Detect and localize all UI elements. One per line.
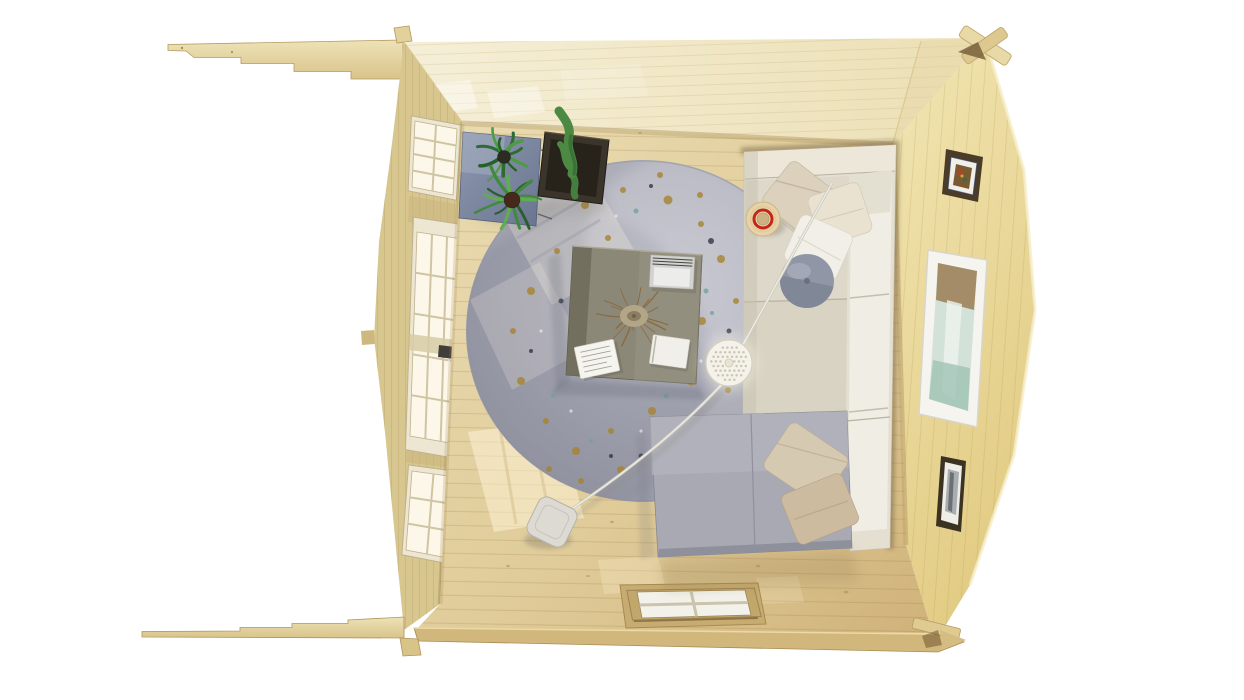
beam-plank bbox=[168, 40, 403, 79]
magazine-stack bbox=[649, 255, 698, 293]
right-wall bbox=[893, 38, 1035, 633]
cactus-arm bbox=[573, 176, 575, 196]
picture-frame-small-bottom bbox=[936, 456, 966, 532]
window-left-wall-top bbox=[408, 116, 461, 201]
roof-overhang-beam-top bbox=[168, 26, 412, 79]
wall-batten-end bbox=[361, 330, 375, 345]
beam-plank bbox=[142, 617, 404, 638]
picture-frame-small-top bbox=[942, 149, 983, 202]
hat-crown bbox=[757, 213, 769, 225]
framed-art-large bbox=[919, 250, 987, 427]
log-end-tab bbox=[400, 638, 421, 656]
front-door-glass-panes bbox=[627, 588, 761, 620]
scene-svg bbox=[0, 0, 1244, 700]
cabin-top-view-render bbox=[0, 0, 1244, 700]
log-end-tab bbox=[394, 26, 412, 43]
white-book bbox=[649, 335, 692, 372]
roof-overhang-beam-bottom bbox=[142, 617, 421, 656]
